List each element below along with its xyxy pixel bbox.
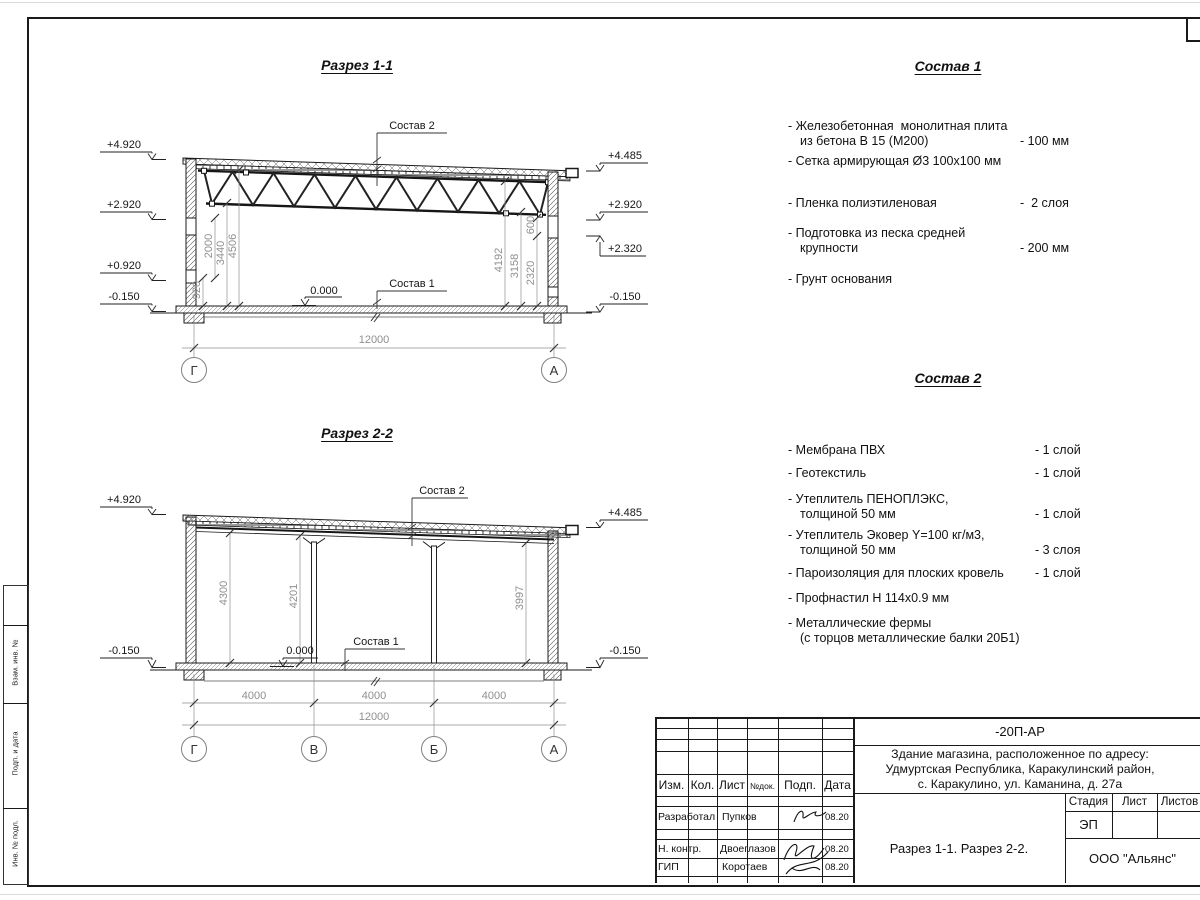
elevation-label: -0.150 [98,291,150,303]
project-address-line: с. Каракулино, ул. Каманина, д. 27а [853,777,1187,791]
frame-notch-vertical [1186,17,1188,41]
vertical-dim: 2000 [203,206,215,286]
titleblock-line [688,717,689,883]
span-dim: 4000 [224,690,284,702]
titleblock-line [655,858,853,859]
drawing-name: Разрез 1-1. Разрез 2-2. [853,841,1065,856]
titleblock-line [853,793,1200,794]
side-strip-label: Инв. № подл. [11,804,20,884]
grid-axis-letter: Г [182,363,206,378]
role-label: ГИП [658,861,679,873]
vertical-dim: 600 [525,185,537,265]
elevation-label: +4.920 [98,494,150,506]
date-value: 08.20 [825,844,849,855]
material-item: - Профнастил Н 114х0.9 мм [788,591,1200,606]
callout-sostav2: Состав 2 [380,120,444,132]
vertical-dim: 4300 [218,553,230,633]
grid-axis-letter: А [542,363,566,378]
callout-sostav2: Состав 2 [414,485,470,497]
project-address-line: Здание магазина, расположенное по адресу… [853,747,1187,761]
vertical-dim: 920 [191,250,203,330]
frame-notch-horizontal [1186,40,1200,42]
company-name: ООО "Альянс" [1065,851,1200,866]
span-dim: 4000 [464,690,524,702]
titleblock-line [655,751,853,752]
material-value: - 1 слой [1035,466,1081,481]
grid-axis-letter: Г [182,742,206,757]
titleblock-border [655,717,1200,719]
elevation-label: +2.920 [600,199,650,211]
total-dim: 12000 [344,711,404,723]
person-name: Пупков [722,811,757,823]
material-value: - 2 слоя [1020,196,1069,211]
elevation-label: +2.320 [600,243,650,255]
project-address-line: Удмуртская Республика, Каракулинский рай… [853,762,1187,776]
material-value: - 1 слой [1035,566,1081,581]
titleblock-line [853,745,1200,746]
sheets-label: Листов [1157,796,1200,808]
span-dim: 4000 [344,690,404,702]
material-value: - 1 слой [1035,443,1081,458]
col-header-kol: Кол. [688,778,717,792]
titleblock-line [717,717,718,883]
side-strip-label: Подп. и дата [11,714,20,794]
stage-label: Стадия [1065,796,1112,808]
grid-axis-letter: Б [422,742,446,757]
material-item: - Утеплитель Эковер Y=100 кг/м3, толщино… [788,528,1200,558]
elevation-label: +4.920 [98,139,150,151]
zero-level: 0.000 [306,285,342,297]
titleblock-line [778,717,779,883]
titleblock-line [655,774,853,775]
titleblock-line [655,796,853,797]
side-strip-divider [3,703,27,704]
sheet-label: Лист [1112,796,1157,808]
col-header-data: Дата [822,778,853,792]
titleblock-line [655,876,853,877]
drawing-sheet: { "frame": { "side_labels": ["Взам. инв.… [0,0,1200,900]
material-item: - Металлические фермы (с торцов металлич… [788,616,1200,646]
material-value: - 200 мм [1020,241,1069,256]
sostav1-list: - Железобетонная монолитная плита из бет… [788,119,1200,287]
titleblock-line [822,717,823,883]
sostav1-title: Состав 1 [788,58,1108,74]
document-code: -20П-АР [853,724,1187,739]
col-header-podp: Подп. [778,778,822,792]
col-header-ndok: №док. [747,781,778,791]
material-item: - Мембрана ПВХ - 1 слой [788,443,1200,458]
sostav2-title: Состав 2 [788,370,1108,386]
callout-sostav1: Состав 1 [348,636,404,648]
material-item: - Пароизоляция для плоских кровель - 1 с… [788,566,1200,581]
titleblock-line [1065,811,1200,812]
titleblock-line [655,739,853,740]
material-item: - Подготовка из песка средней крупности … [788,226,1200,256]
col-header-izm: Изм. [655,778,688,792]
vertical-dim: 4506 [227,206,239,286]
titleblock-line [1065,838,1200,839]
elevation-label: +4.485 [600,507,650,519]
elevation-label: +0.920 [98,260,150,272]
material-value: - 3 слоя [1035,543,1080,558]
material-item: - Геотекстиль - 1 слой [788,466,1200,481]
date-value: 08.20 [825,812,849,823]
vertical-dim: 4201 [288,556,300,636]
titleblock-line [655,806,853,807]
person-name: Двоеглазов [720,843,776,855]
elevation-label: +4.485 [600,150,650,162]
person-name: Коротаев [722,861,767,873]
titleblock-line [655,839,853,840]
material-value: - 100 мм [1020,134,1069,149]
stage-value: ЭП [1065,817,1112,832]
material-item: - Сетка армирующая Ø3 100х100 мм [788,154,1200,169]
vertical-dim: 3158 [509,226,521,306]
titleblock-line [747,717,748,883]
vertical-dim: 3997 [514,558,526,638]
callout-sostav1: Состав 1 [380,278,444,290]
material-item: - Утеплитель ПЕНОПЛЭКС, толщиной 50 мм -… [788,492,1200,522]
elevation-label: -0.150 [600,645,650,657]
elevation-label: +2.920 [98,199,150,211]
material-item: - Пленка полиэтиленовая - 2 слоя [788,196,1200,211]
material-item: - Грунт основания [788,272,1200,287]
zero-level: 0.000 [282,645,318,657]
grid-axis-letter: А [542,742,566,757]
section2-title: Разрез 2-2 [297,425,417,441]
titleblock-line [655,728,853,729]
role-label: Разработал [658,811,715,823]
elevation-label: -0.150 [98,645,150,657]
grid-axis-letter: В [302,742,326,757]
material-value: - 1 слой [1035,507,1081,522]
section1-title: Разрез 1-1 [297,57,417,73]
elevation-label: -0.150 [600,291,650,303]
col-header-list: Лист [717,778,747,792]
vertical-dim: 3440 [215,213,227,293]
titleblock-line [655,829,853,830]
vertical-dim: 4192 [493,220,505,300]
material-item: - Железобетонная монолитная плита из бет… [788,119,1200,149]
date-value: 08.20 [825,862,849,873]
side-strip-label: Взам. инв. № [11,623,20,703]
sostav2-list: - Мембрана ПВХ - 1 слой - Геотекстиль - … [788,443,1200,646]
total-dim: 12000 [344,334,404,346]
role-label: Н. контр. [658,843,701,855]
titleblock-line [853,717,855,883]
